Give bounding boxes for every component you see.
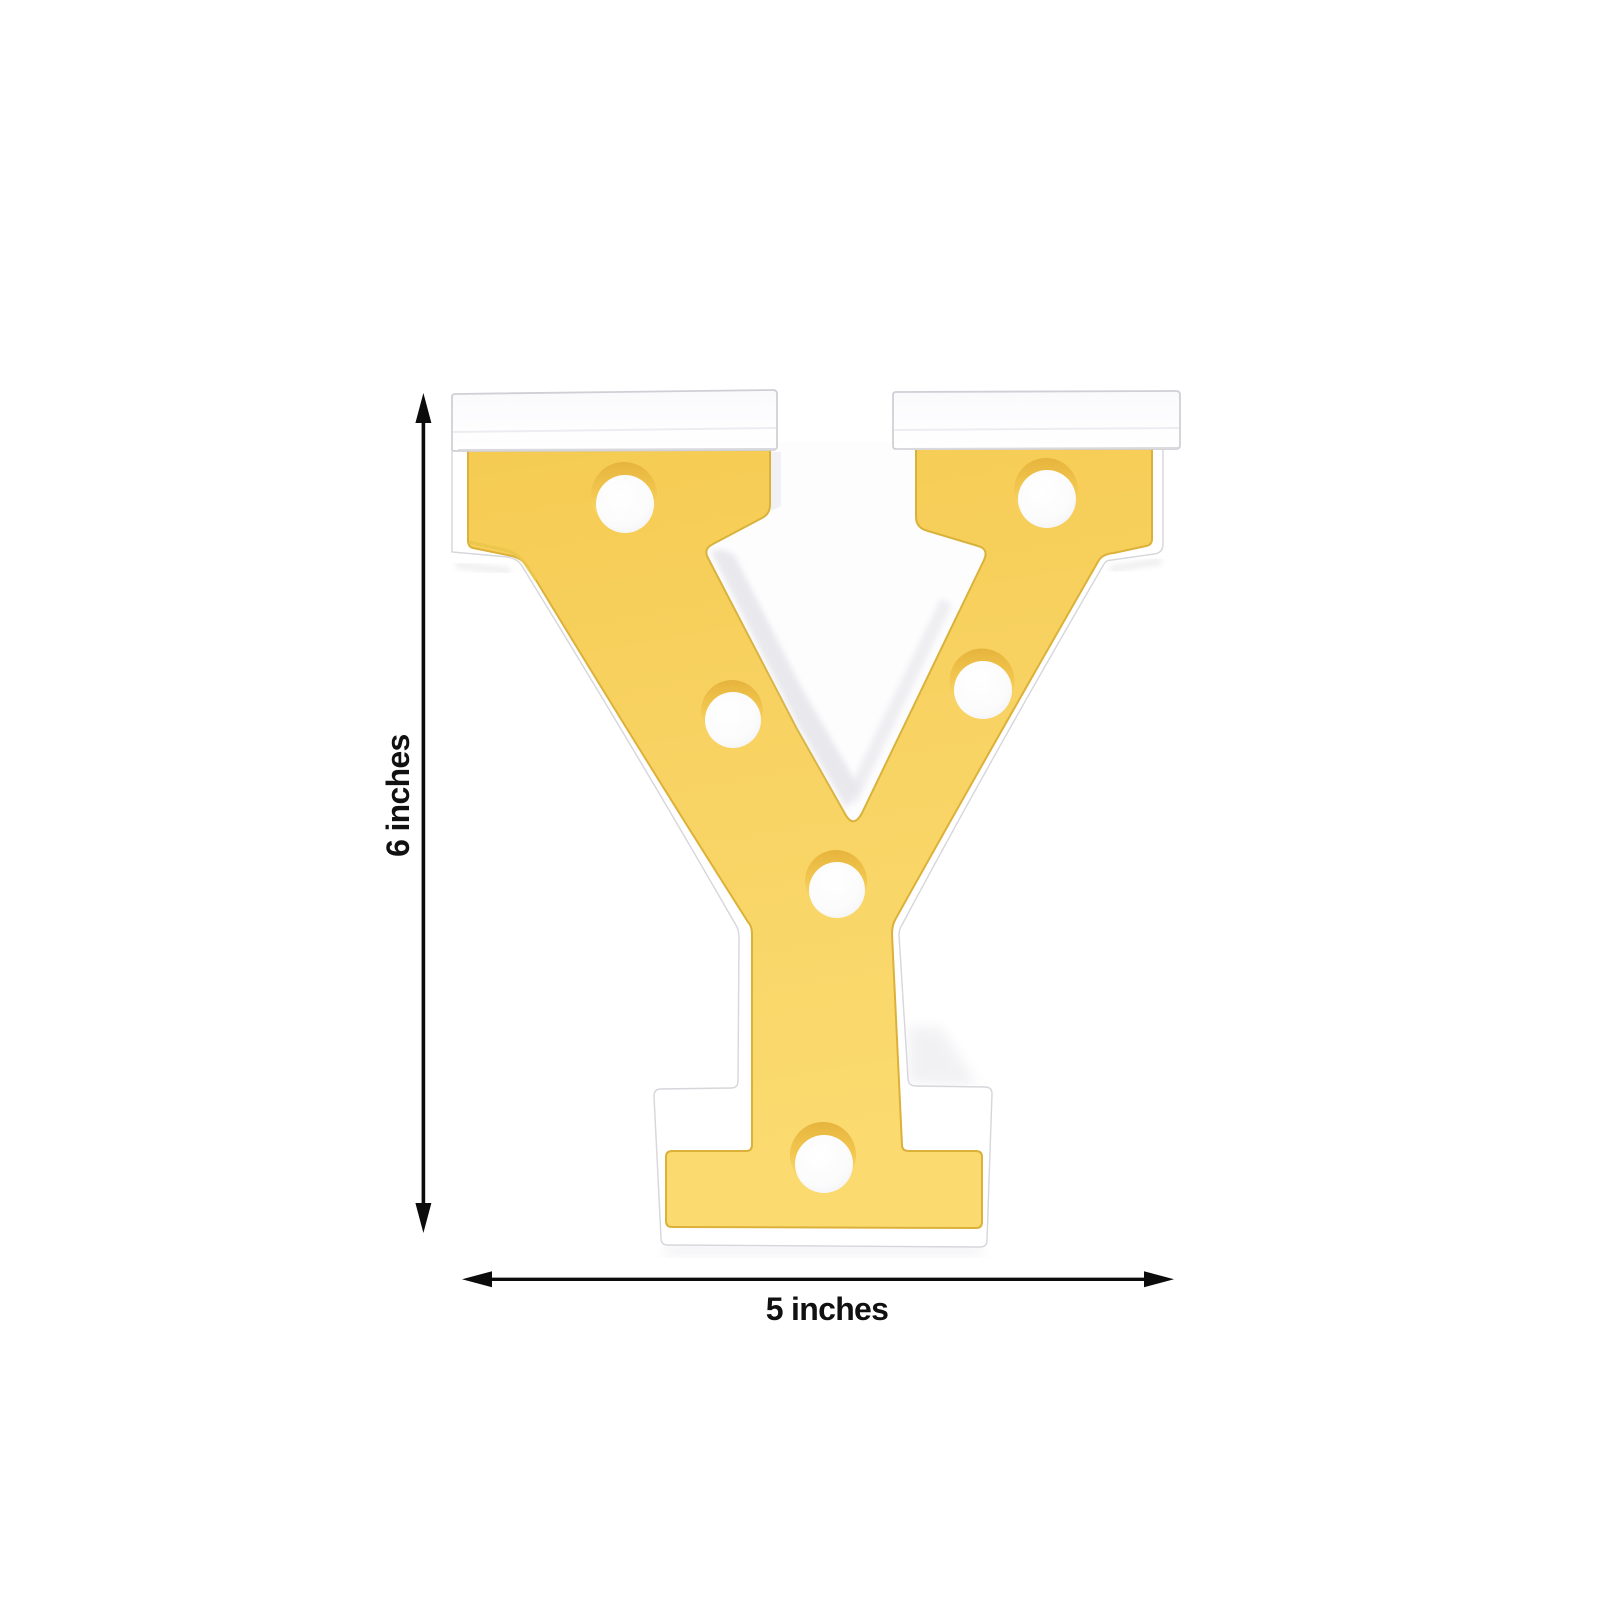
svg-text:5 inches: 5 inches bbox=[766, 1291, 888, 1327]
svg-text:6 inches: 6 inches bbox=[380, 734, 416, 856]
